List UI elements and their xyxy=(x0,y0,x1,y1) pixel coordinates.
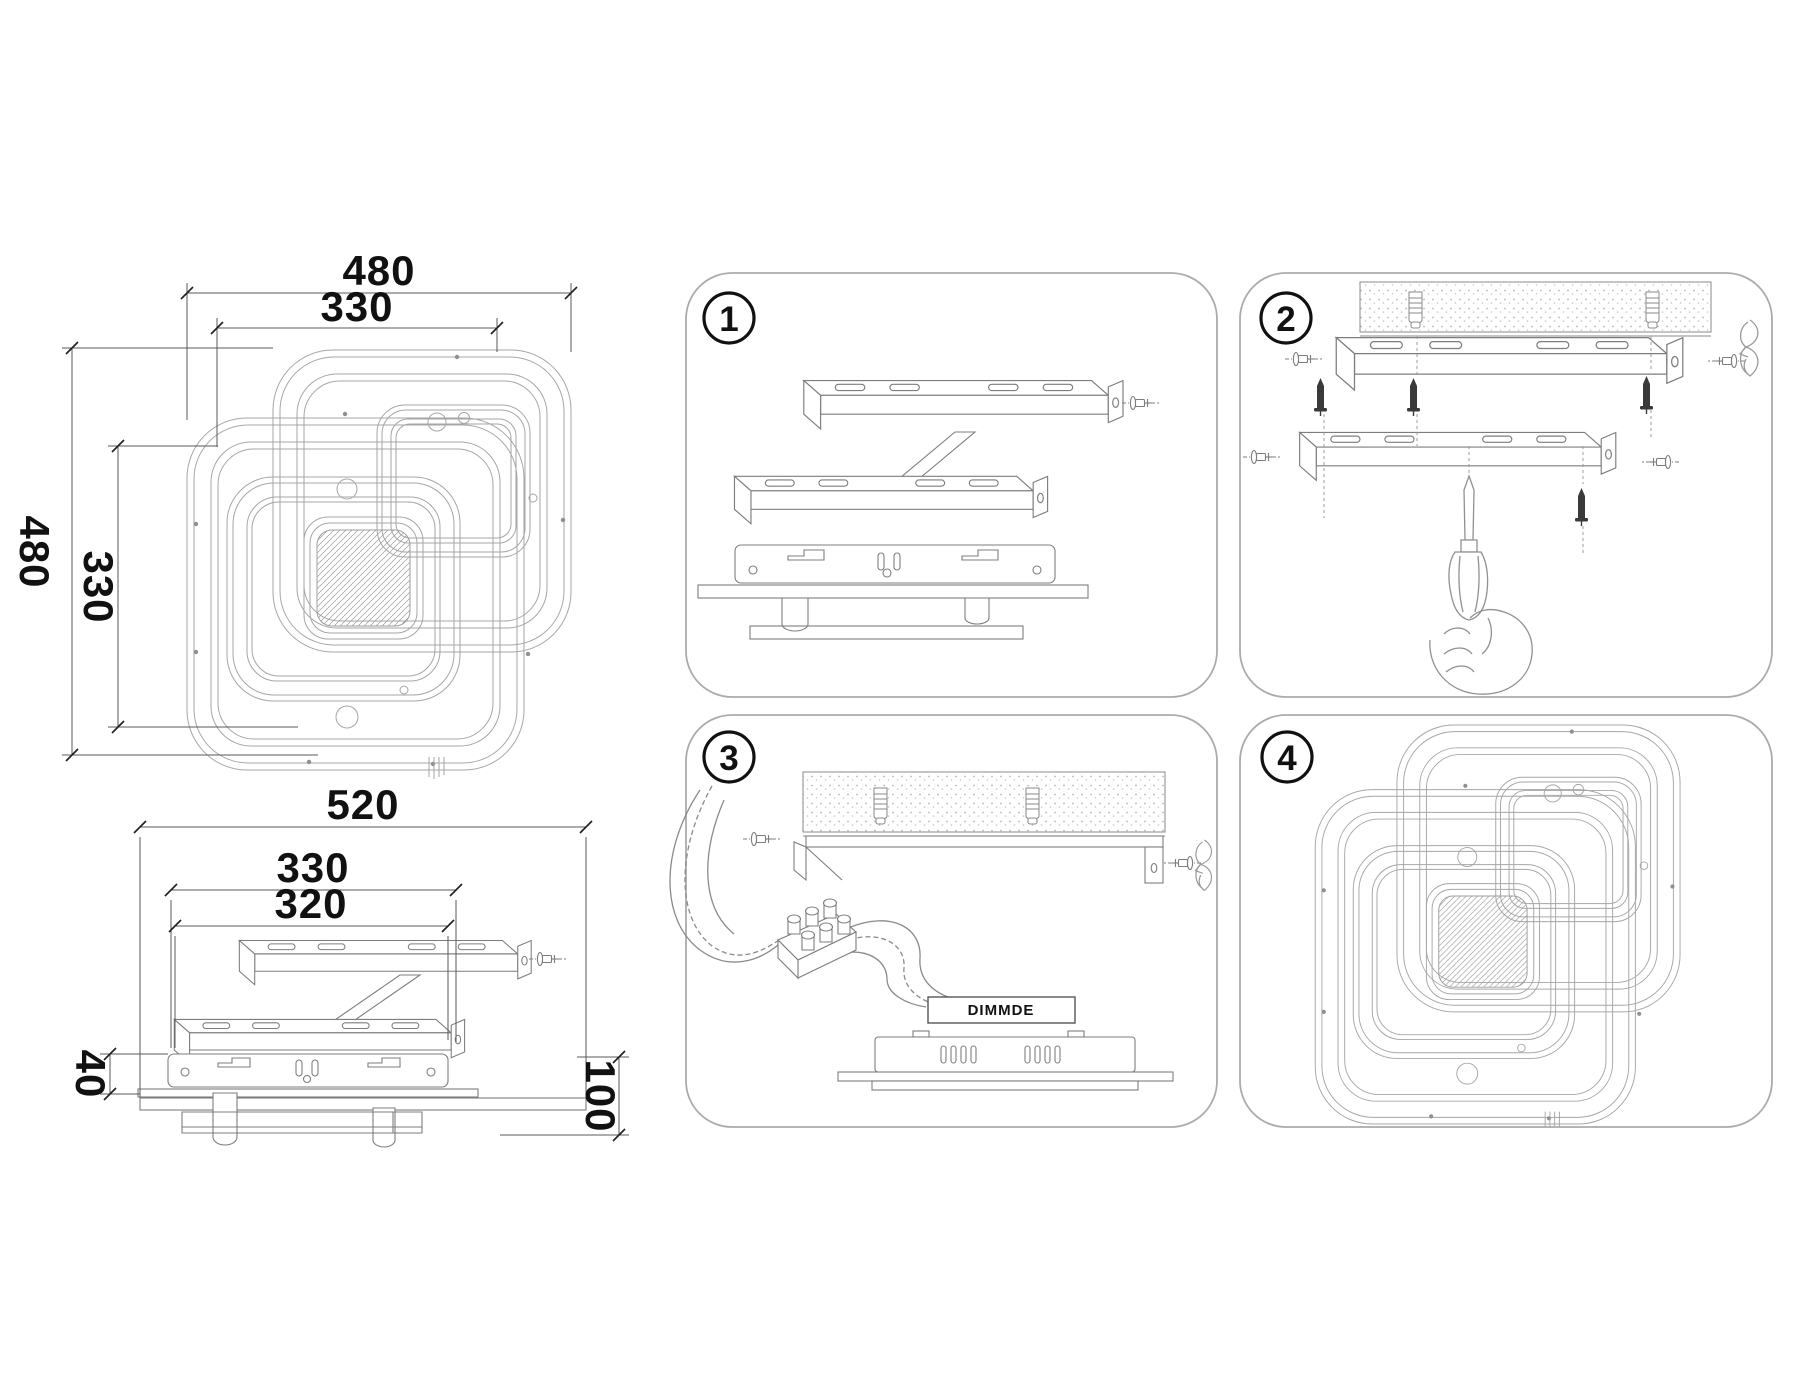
wall-plug xyxy=(1409,292,1422,328)
ceiling xyxy=(803,772,1165,832)
dim-plan-height-inner: 330 xyxy=(75,550,122,623)
dim-side-width-total: 520 xyxy=(326,781,399,828)
step-3-number: 3 xyxy=(719,739,738,778)
manual-drawing: 480 330 480 330 xyxy=(0,0,1800,1400)
wall-plug xyxy=(874,788,887,824)
dim-side-bracket-inner: 320 xyxy=(274,880,347,927)
driver-label: DIMMDE xyxy=(968,1002,1035,1019)
step-4-number: 4 xyxy=(1277,739,1297,778)
installation-manual-page: 480 330 480 330 xyxy=(0,0,1800,1400)
step-1-number: 1 xyxy=(719,300,738,339)
lamp-base-rear xyxy=(838,1031,1173,1090)
dim-side-total-height: 100 xyxy=(577,1059,624,1132)
dim-plan-height-outer: 480 xyxy=(11,515,58,588)
dim-plan-width-inner: 330 xyxy=(320,283,393,330)
wall-plug xyxy=(1646,292,1659,328)
wall-plug xyxy=(1026,788,1039,824)
step-2-number: 2 xyxy=(1276,300,1295,339)
page-background xyxy=(0,0,1800,1400)
dim-side-base-height: 40 xyxy=(67,1050,114,1099)
